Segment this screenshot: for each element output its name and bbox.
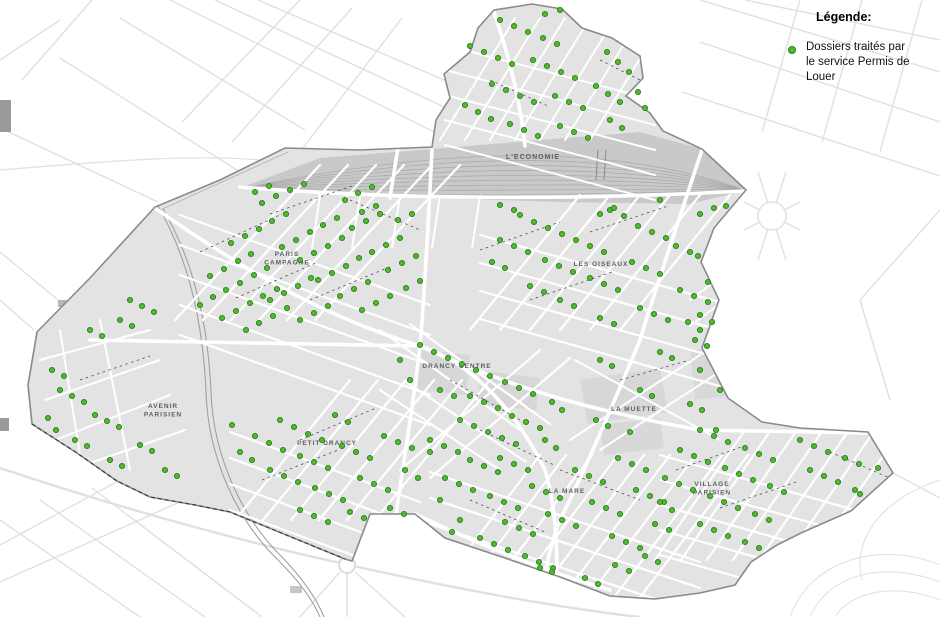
dossier-dot xyxy=(651,311,656,316)
dossier-dot xyxy=(505,547,510,552)
dossier-dot xyxy=(685,319,690,324)
district-label-avenir-parisien: AVENIRPARISIEN xyxy=(144,403,182,419)
dossier-dot xyxy=(704,343,709,348)
dossier-dot xyxy=(507,121,512,126)
dossier-dot xyxy=(580,105,585,110)
dossier-dot xyxy=(311,513,316,518)
dossier-dot xyxy=(237,449,242,454)
dossier-dot xyxy=(385,267,390,272)
dossier-dot xyxy=(92,412,97,417)
dossier-dot xyxy=(752,511,757,516)
dossier-dot xyxy=(585,135,590,140)
dossier-dot xyxy=(311,250,316,255)
dossier-dot xyxy=(725,439,730,444)
dossier-dot xyxy=(266,183,271,188)
dossier-dot xyxy=(511,23,516,28)
dossier-dot xyxy=(875,465,880,470)
dossier-dot-icon xyxy=(788,46,796,54)
dossier-dot xyxy=(721,499,726,504)
dossier-dot xyxy=(233,308,238,313)
dossier-dot xyxy=(470,487,475,492)
dossier-dot xyxy=(481,49,486,54)
dossier-dot xyxy=(356,255,361,260)
dossier-dot xyxy=(325,465,330,470)
legend-item: Dossiers traités par le service Permis d… xyxy=(782,40,934,85)
dossier-dot xyxy=(297,257,302,262)
dossier-dot xyxy=(307,229,312,234)
dossier-dot xyxy=(835,479,840,484)
dossier-dot xyxy=(665,317,670,322)
dossier-dot xyxy=(427,437,432,442)
dossier-dot xyxy=(451,393,456,398)
dossier-dot xyxy=(197,302,202,307)
dossier-dot xyxy=(572,75,577,80)
dossier-dot xyxy=(525,29,530,34)
dossier-dot xyxy=(582,575,587,580)
dossier-dot xyxy=(766,517,771,522)
map-canvas: L'ECONOMIEPARISCAMPAGNELES OISEAUXDRANCY… xyxy=(0,0,940,617)
dossier-dot xyxy=(662,475,667,480)
dossier-dot xyxy=(556,263,561,268)
legend: Légende: Dossiers traités par le service… xyxy=(782,10,934,85)
dossier-dot xyxy=(84,443,89,448)
dossier-dot xyxy=(655,559,660,564)
dossier-dot xyxy=(633,487,638,492)
dossier-dot xyxy=(537,425,542,430)
dossier-dot xyxy=(270,313,275,318)
dossier-dot xyxy=(549,399,554,404)
dossier-dot xyxy=(127,297,132,302)
dossier-dot xyxy=(690,487,695,492)
dossier-dot xyxy=(371,481,376,486)
dossier-dot xyxy=(657,197,662,202)
dossier-dot xyxy=(355,190,360,195)
dossier-dot xyxy=(559,231,564,236)
dossier-dot xyxy=(511,461,516,466)
dossier-dot xyxy=(351,286,356,291)
dossier-dot xyxy=(359,209,364,214)
dossier-dot xyxy=(691,453,696,458)
dossier-dot xyxy=(441,443,446,448)
dossier-dot xyxy=(736,471,741,476)
dossier-dot xyxy=(251,272,256,277)
dossier-dot xyxy=(522,553,527,558)
dossier-dot xyxy=(359,307,364,312)
dossier-dot xyxy=(149,448,154,453)
dossier-dot xyxy=(570,269,575,274)
dossier-dot xyxy=(605,91,610,96)
dossier-dot xyxy=(497,202,502,207)
dossier-dot xyxy=(247,300,252,305)
dossier-dot xyxy=(413,253,418,258)
dossier-dot xyxy=(705,459,710,464)
dossier-dot xyxy=(417,278,422,283)
dossier-dot xyxy=(326,491,331,496)
dossier-dot xyxy=(509,413,514,418)
dossier-dot xyxy=(676,481,681,486)
dossier-dot xyxy=(663,235,668,240)
district-label-la-mare: LA MARE xyxy=(549,488,585,495)
dossier-dot xyxy=(340,497,345,502)
dossier-dot xyxy=(637,387,642,392)
dossier-dot xyxy=(572,467,577,472)
dossier-dot xyxy=(266,440,271,445)
dossier-dot xyxy=(99,333,104,338)
dossier-dot xyxy=(229,422,234,427)
dossier-dot xyxy=(531,219,536,224)
dossier-dot xyxy=(297,317,302,322)
dossier-dot xyxy=(457,417,462,422)
dossier-dot xyxy=(248,251,253,256)
dossier-dot xyxy=(256,320,261,325)
dossier-dot xyxy=(489,259,494,264)
dossier-dot xyxy=(725,533,730,538)
dossier-dot xyxy=(369,249,374,254)
dossier-dot xyxy=(162,467,167,472)
dossier-dot xyxy=(223,287,228,292)
dossier-dot xyxy=(717,387,722,392)
dossier-dot xyxy=(339,235,344,240)
dossier-dot xyxy=(515,505,520,510)
dossier-dot xyxy=(692,337,697,342)
dossier-dot xyxy=(325,303,330,308)
dossier-dot xyxy=(642,553,647,558)
dossier-dot xyxy=(557,297,562,302)
dossier-dot xyxy=(495,469,500,474)
dossier-dot xyxy=(595,581,600,586)
dossier-dot xyxy=(332,412,337,417)
dossier-dot xyxy=(544,63,549,68)
dossier-dot xyxy=(301,181,306,186)
dossier-dot xyxy=(311,459,316,464)
dossier-dot xyxy=(677,447,682,452)
dossier-dot xyxy=(525,249,530,254)
dossier-dot xyxy=(637,545,642,550)
dossier-dot xyxy=(735,505,740,510)
dossier-dot xyxy=(395,439,400,444)
dossier-dot xyxy=(597,211,602,216)
dossier-dot xyxy=(381,433,386,438)
dossier-dot xyxy=(649,393,654,398)
dossier-dot xyxy=(279,244,284,249)
dossier-dot xyxy=(397,357,402,362)
dossier-dot xyxy=(502,519,507,524)
dossier-dot xyxy=(267,297,272,302)
dossier-dot xyxy=(295,283,300,288)
dossier-dot xyxy=(462,102,467,107)
dossier-dot xyxy=(597,315,602,320)
dossier-dot xyxy=(385,487,390,492)
dossier-dot xyxy=(219,315,224,320)
dossier-dot xyxy=(691,293,696,298)
dossier-dot xyxy=(626,69,631,74)
dossier-dot xyxy=(673,243,678,248)
dossier-dot xyxy=(756,545,761,550)
dossier-dot xyxy=(593,83,598,88)
dossier-dot xyxy=(615,455,620,460)
dossier-dot xyxy=(513,441,518,446)
dossier-dot xyxy=(657,499,662,504)
dossier-dot xyxy=(345,419,350,424)
dossier-dot xyxy=(807,467,812,472)
dossier-dot xyxy=(542,11,547,16)
dossier-dot xyxy=(415,475,420,480)
dossier-dot xyxy=(57,387,62,392)
dossier-dot xyxy=(281,473,286,478)
dossier-dot xyxy=(117,317,122,322)
dossier-dot xyxy=(235,258,240,263)
dossier-dot xyxy=(277,417,282,422)
dossier-dot xyxy=(427,449,432,454)
dossier-dot xyxy=(642,105,647,110)
dossier-dot xyxy=(705,299,710,304)
dossier-dot xyxy=(139,303,144,308)
dossier-dot xyxy=(485,429,490,434)
dossier-dot xyxy=(377,211,382,216)
dossier-dot xyxy=(657,271,662,276)
dossier-dot xyxy=(571,129,576,134)
dossier-dot xyxy=(540,35,545,40)
dossier-dot xyxy=(221,266,226,271)
dossier-dot xyxy=(349,225,354,230)
dossier-dot xyxy=(116,424,121,429)
dossier-dot xyxy=(334,215,339,220)
dossier-dot xyxy=(742,539,747,544)
dossier-dot xyxy=(342,197,347,202)
dossier-dot xyxy=(852,487,857,492)
dossier-dot xyxy=(558,69,563,74)
dossier-dot xyxy=(559,517,564,522)
dossier-dot xyxy=(72,437,77,442)
dossier-dot xyxy=(129,323,134,328)
dossier-dot xyxy=(711,527,716,532)
dossier-dot xyxy=(329,270,334,275)
dossier-dot xyxy=(365,279,370,284)
dossier-dot xyxy=(530,57,535,62)
dossier-dot xyxy=(612,562,617,567)
dossier-dot xyxy=(81,399,86,404)
dossier-dot xyxy=(601,249,606,254)
dossier-dot xyxy=(699,407,704,412)
dossier-dot xyxy=(586,473,591,478)
dossier-dot xyxy=(573,237,578,242)
dossier-dot xyxy=(605,423,610,428)
dossier-dot xyxy=(107,457,112,462)
dossier-dot xyxy=(697,521,702,526)
dossier-dot xyxy=(781,489,786,494)
dossier-dot xyxy=(629,259,634,264)
dossier-dot xyxy=(811,443,816,448)
dossier-dot xyxy=(311,310,316,315)
dossier-dot xyxy=(387,505,392,510)
dossier-dot xyxy=(573,523,578,528)
dossier-dot xyxy=(549,569,554,574)
dossier-dot xyxy=(174,473,179,478)
dossier-dot xyxy=(617,99,622,104)
dossier-dot xyxy=(308,275,313,280)
dossier-dot xyxy=(104,418,109,423)
dossier-dot xyxy=(713,427,718,432)
dossier-dot xyxy=(137,442,142,447)
dossier-dot xyxy=(481,399,486,404)
dossier-dot xyxy=(530,391,535,396)
map-report: L'ECONOMIEPARISCAMPAGNELES OISEAUXDRANCY… xyxy=(0,0,940,617)
dossier-dot xyxy=(339,443,344,448)
dossier-dot xyxy=(511,207,516,212)
dossier-dot xyxy=(243,327,248,332)
dossier-dot xyxy=(709,319,714,324)
dossier-dot xyxy=(587,275,592,280)
dossier-dot xyxy=(697,427,702,432)
dossier-dot xyxy=(825,449,830,454)
dossier-dot xyxy=(367,455,372,460)
dossier-dot xyxy=(402,467,407,472)
dossier-dot xyxy=(397,235,402,240)
dossier-dot xyxy=(373,300,378,305)
dossier-dot xyxy=(357,475,362,480)
dossier-dot xyxy=(603,505,608,510)
dossier-dot xyxy=(687,401,692,406)
dossier-dot xyxy=(280,447,285,452)
dossier-dot xyxy=(401,511,406,516)
dossier-dot xyxy=(516,525,521,530)
dossier-dot xyxy=(619,125,624,130)
dossier-dot xyxy=(525,467,530,472)
dossier-dot xyxy=(643,265,648,270)
dossier-dot xyxy=(705,279,710,284)
dossier-dot xyxy=(697,367,702,372)
dossier-dot xyxy=(283,211,288,216)
dossier-dot xyxy=(517,93,522,98)
dossier-dot xyxy=(589,499,594,504)
district-label-la-muette: LA MUETTE xyxy=(611,406,657,413)
dossier-dot xyxy=(566,99,571,104)
dossier-dot xyxy=(315,277,320,282)
dossier-dot xyxy=(652,521,657,526)
dossier-dot xyxy=(437,497,442,502)
dossier-dot xyxy=(455,449,460,454)
dossier-dot xyxy=(536,559,541,564)
dossier-dot xyxy=(697,312,702,317)
dossier-dot xyxy=(503,87,508,92)
dossier-dot xyxy=(69,393,74,398)
dossier-dot xyxy=(750,477,755,482)
dossier-dot xyxy=(627,429,632,434)
dossier-dot xyxy=(297,507,302,512)
dossier-dot xyxy=(491,541,496,546)
dossier-dot xyxy=(295,479,300,484)
dossier-dot xyxy=(284,305,289,310)
dossier-dot xyxy=(151,309,156,314)
dossier-dot xyxy=(481,463,486,468)
dossier-dot xyxy=(319,437,324,442)
dossier-dot xyxy=(617,511,622,516)
dossier-dot xyxy=(45,415,50,420)
dossier-dot xyxy=(842,455,847,460)
dossier-dot xyxy=(361,515,366,520)
dossier-dot xyxy=(409,445,414,450)
dossier-dot xyxy=(305,431,310,436)
dossier-dot xyxy=(607,117,612,122)
dossier-dot xyxy=(87,327,92,332)
dossier-dot xyxy=(535,133,540,138)
dossier-dot xyxy=(723,203,728,208)
dossier-dot xyxy=(269,218,274,223)
dossier-dot xyxy=(615,287,620,292)
dossier-dot xyxy=(511,243,516,248)
dossier-dot xyxy=(821,473,826,478)
dossier-dot xyxy=(531,99,536,104)
dossier-dot xyxy=(347,509,352,514)
dossier-dot xyxy=(635,223,640,228)
dossier-dot xyxy=(264,265,269,270)
dossier-dot xyxy=(395,217,400,222)
dossier-dot xyxy=(695,253,700,258)
dossier-dot xyxy=(767,483,772,488)
dossier-dot xyxy=(467,43,472,48)
dossier-dot xyxy=(325,243,330,248)
dossier-dot xyxy=(501,499,506,504)
dossier-dot xyxy=(497,237,502,242)
dossier-dot xyxy=(669,507,674,512)
dossier-dot xyxy=(509,61,514,66)
dossier-dot xyxy=(587,243,592,248)
dossier-dot xyxy=(697,327,702,332)
dossier-dot xyxy=(417,342,422,347)
dossier-dot xyxy=(604,49,609,54)
dossier-dot xyxy=(369,184,374,189)
dossier-dot xyxy=(274,286,279,291)
district-label-drancy-centre: DRANCY CENTRE xyxy=(422,363,491,370)
dossier-dot xyxy=(207,273,212,278)
dossier-dot xyxy=(373,203,378,208)
dossier-dot xyxy=(687,249,692,254)
dossier-dot xyxy=(669,355,674,360)
dossier-dot xyxy=(325,519,330,524)
dossier-dot xyxy=(637,305,642,310)
dossier-dot xyxy=(649,229,654,234)
dossier-dot xyxy=(477,535,482,540)
dossier-dot xyxy=(523,419,528,424)
dossier-dot xyxy=(495,405,500,410)
dossier-dot xyxy=(601,281,606,286)
dossier-dot xyxy=(273,193,278,198)
dossier-dot xyxy=(497,17,502,22)
dossier-dot xyxy=(473,367,478,372)
dossier-dot xyxy=(267,467,272,472)
dossier-dot xyxy=(527,283,532,288)
dossier-dot xyxy=(609,363,614,368)
dossier-dot xyxy=(497,455,502,460)
dossier-dot xyxy=(552,93,557,98)
dossier-dot xyxy=(297,453,302,458)
dossier-dot xyxy=(742,445,747,450)
dossier-dot xyxy=(495,55,500,60)
dossier-dot xyxy=(383,242,388,247)
dossier-dot xyxy=(53,427,58,432)
dossier-dot xyxy=(449,529,454,534)
legend-item-label: Dossiers traités par le service Permis d… xyxy=(806,40,914,85)
dossier-dot xyxy=(459,361,464,366)
dossier-dot xyxy=(545,511,550,516)
dossier-dot xyxy=(252,433,257,438)
dossier-dot xyxy=(517,212,522,217)
dossier-dot xyxy=(797,437,802,442)
dossier-dot xyxy=(287,187,292,192)
district-label-petit-drancy: PETIT DRANCY xyxy=(297,440,357,447)
dossier-dot xyxy=(457,517,462,522)
dossier-dot xyxy=(259,200,264,205)
